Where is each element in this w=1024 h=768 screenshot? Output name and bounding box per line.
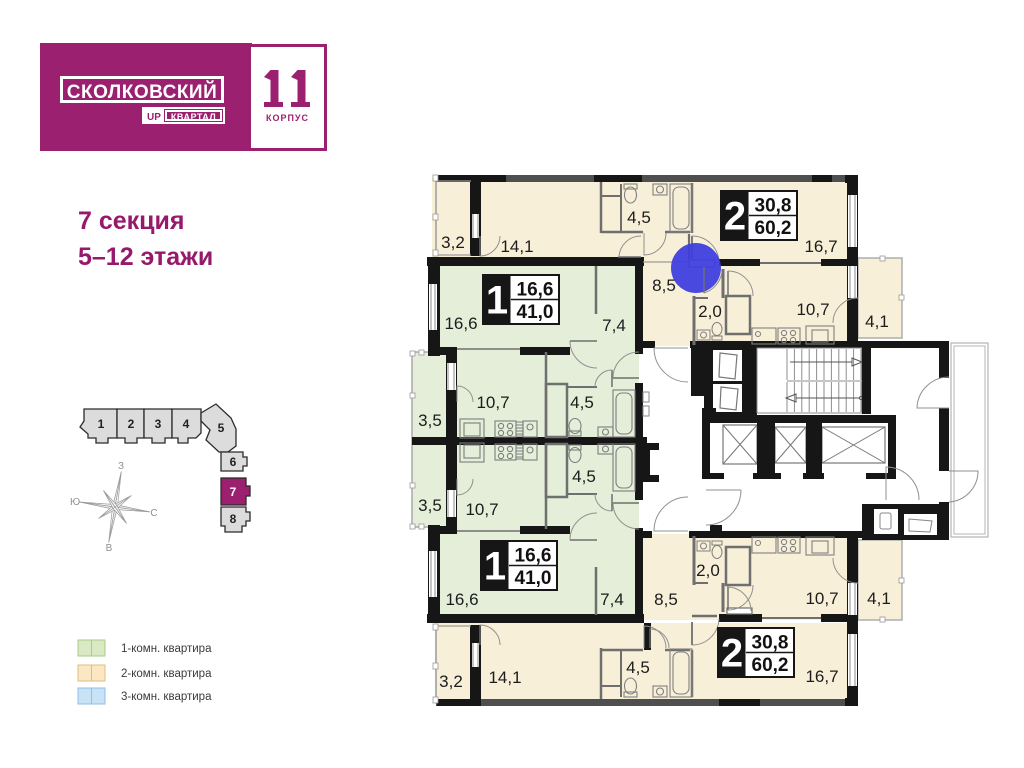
svg-text:3-комн. квартира: 3-комн. квартира	[121, 691, 212, 703]
svg-text:60,2: 60,2	[752, 655, 789, 676]
svg-text:16,7: 16,7	[805, 667, 838, 686]
svg-text:4: 4	[183, 417, 190, 431]
svg-text:16,6: 16,6	[445, 590, 478, 609]
svg-text:6: 6	[230, 455, 237, 469]
svg-text:4,1: 4,1	[865, 312, 889, 331]
svg-text:4,5: 4,5	[626, 658, 650, 677]
svg-text:7,4: 7,4	[600, 590, 624, 609]
svg-text:4,5: 4,5	[572, 467, 596, 486]
svg-text:1: 1	[484, 545, 506, 589]
svg-text:30,8: 30,8	[752, 633, 789, 654]
svg-text:4,5: 4,5	[570, 393, 594, 412]
svg-text:С: С	[150, 508, 157, 519]
svg-text:2: 2	[724, 195, 746, 239]
svg-text:3,5: 3,5	[418, 411, 442, 430]
svg-text:1: 1	[486, 279, 508, 323]
svg-text:3: 3	[155, 417, 162, 431]
svg-text:1: 1	[98, 417, 105, 431]
svg-text:16,6: 16,6	[517, 280, 554, 301]
svg-text:16,6: 16,6	[515, 546, 552, 567]
svg-text:5: 5	[218, 421, 225, 435]
svg-text:41,0: 41,0	[517, 302, 554, 323]
svg-text:10,7: 10,7	[465, 500, 498, 519]
svg-text:8,5: 8,5	[652, 276, 676, 295]
svg-text:14,1: 14,1	[488, 668, 521, 687]
svg-text:10,7: 10,7	[476, 393, 509, 412]
svg-text:4,1: 4,1	[867, 589, 891, 608]
svg-text:8: 8	[230, 512, 237, 526]
svg-text:2-комн. квартира: 2-комн. квартира	[121, 668, 212, 680]
svg-text:2,0: 2,0	[696, 561, 720, 580]
svg-text:2: 2	[128, 417, 135, 431]
svg-text:7,4: 7,4	[602, 316, 626, 335]
svg-text:1-комн. квартира: 1-комн. квартира	[121, 643, 212, 655]
svg-text:60,2: 60,2	[755, 218, 792, 239]
svg-text:В: В	[106, 543, 113, 554]
svg-text:16,6: 16,6	[444, 314, 477, 333]
svg-text:2,0: 2,0	[698, 302, 722, 321]
svg-text:4,5: 4,5	[627, 208, 651, 227]
svg-text:30,8: 30,8	[755, 196, 792, 217]
svg-text:3,5: 3,5	[418, 496, 442, 515]
svg-text:3,2: 3,2	[441, 233, 465, 252]
svg-text:З: З	[118, 461, 124, 472]
svg-text:10,7: 10,7	[796, 300, 829, 319]
svg-text:3,2: 3,2	[439, 672, 463, 691]
svg-text:14,1: 14,1	[500, 237, 533, 256]
svg-text:16,7: 16,7	[804, 237, 837, 256]
svg-text:Ю: Ю	[70, 497, 80, 508]
svg-text:2: 2	[721, 632, 743, 676]
svg-text:10,7: 10,7	[805, 589, 838, 608]
svg-text:8,5: 8,5	[654, 590, 678, 609]
svg-text:7: 7	[230, 485, 237, 499]
svg-text:41,0: 41,0	[515, 568, 552, 589]
